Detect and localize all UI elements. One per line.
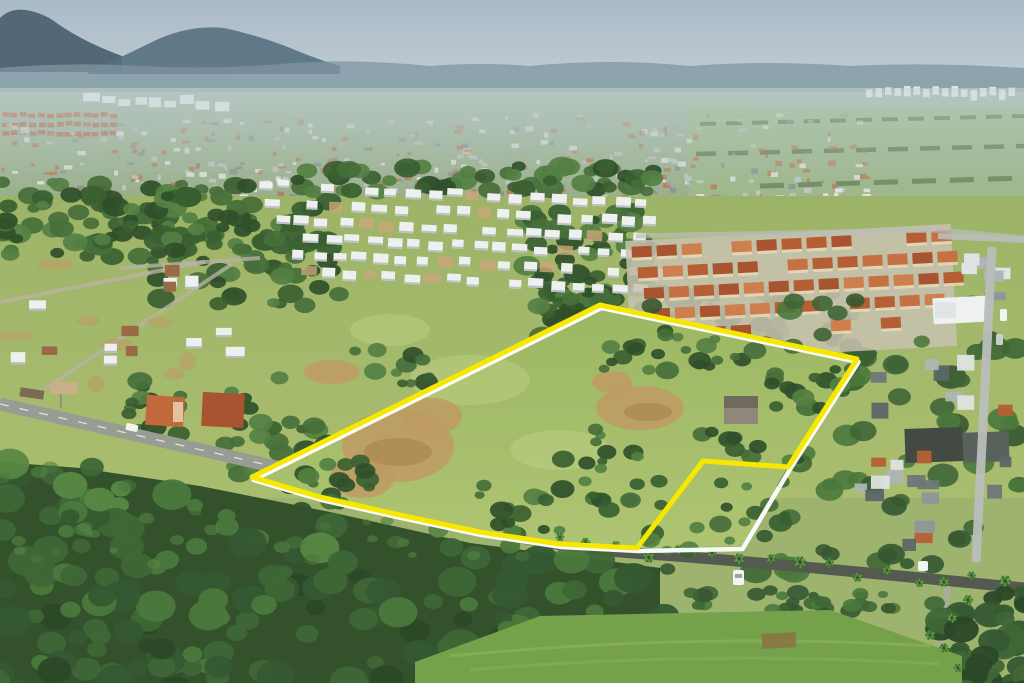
shed-building: [724, 396, 758, 424]
light-pole: [60, 392, 62, 408]
top-right-road: [938, 236, 1024, 240]
aerial-photo-canvas: [0, 0, 1024, 683]
car: [996, 334, 1003, 345]
car-windshield: [735, 574, 742, 578]
house-roof: [201, 392, 245, 428]
aerial-photo: [0, 0, 1024, 683]
dirt-patch: [762, 632, 797, 649]
shed-roof: [724, 396, 758, 408]
house-wall: [173, 402, 183, 422]
car: [1000, 309, 1007, 321]
shed-roof: [50, 382, 78, 394]
car: [918, 561, 928, 571]
